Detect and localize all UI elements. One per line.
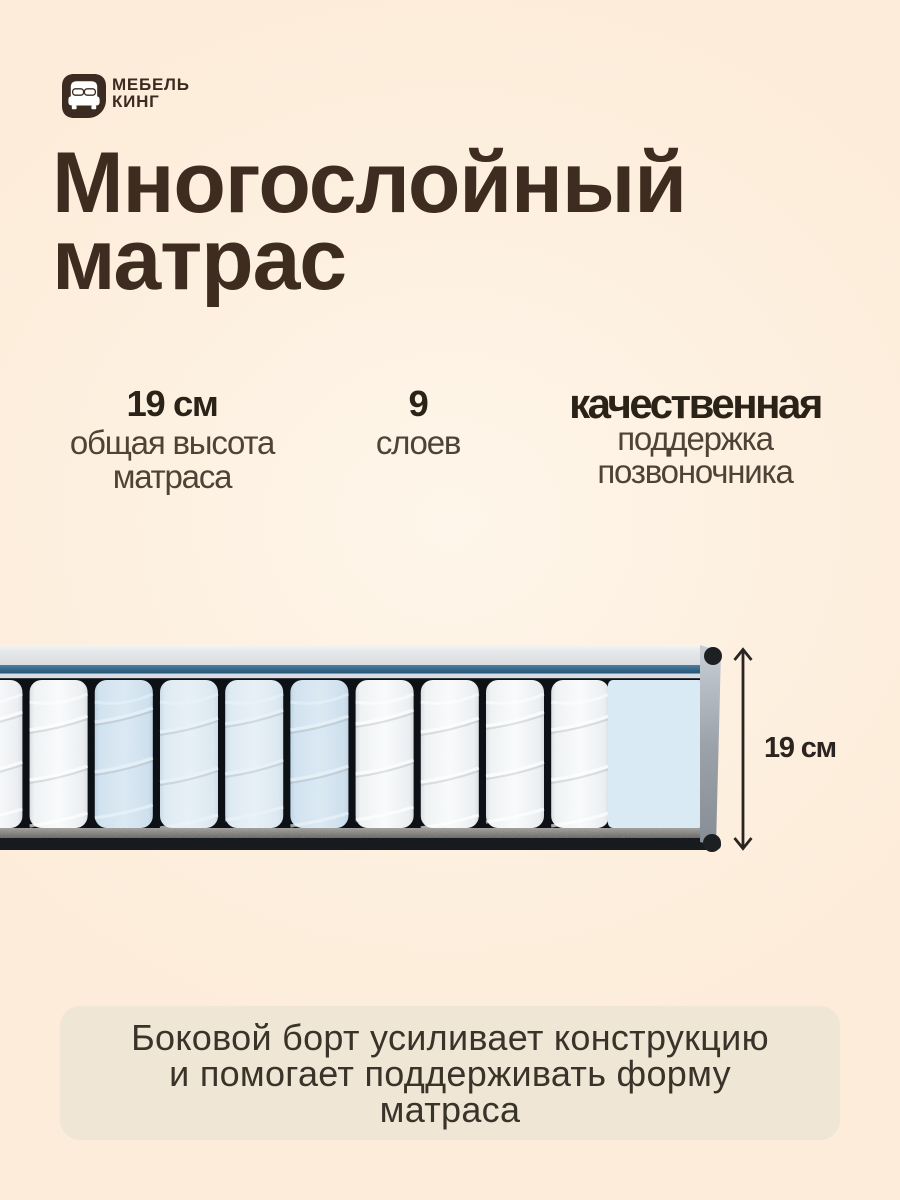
svg-text:19 см: 19 см xyxy=(764,732,836,764)
